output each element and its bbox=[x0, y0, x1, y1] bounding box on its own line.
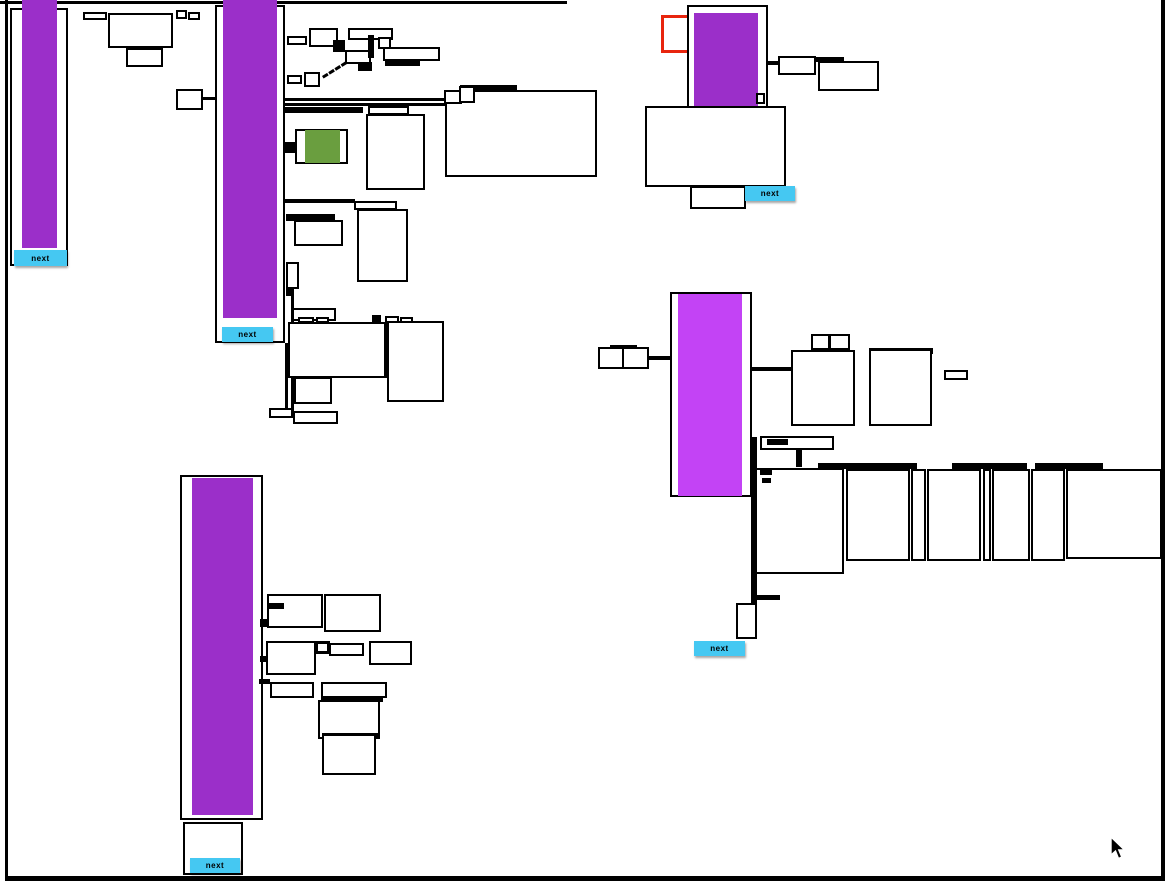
wireframe-box bbox=[818, 61, 879, 91]
wireframe-box bbox=[287, 75, 302, 84]
wireframe-box bbox=[188, 12, 200, 20]
wireframe-box bbox=[690, 186, 746, 209]
wireframe-box bbox=[176, 10, 187, 19]
connector-bar bbox=[767, 439, 788, 445]
wireframe-canvas: next next bbox=[0, 0, 1168, 887]
wireframe-box bbox=[756, 93, 765, 104]
carousel-cell bbox=[992, 469, 1030, 561]
connector-node bbox=[796, 450, 802, 467]
frame-right-border bbox=[1161, 0, 1165, 881]
wireframe-box bbox=[736, 603, 757, 639]
wireframe-box bbox=[288, 322, 386, 378]
wireframe-box bbox=[357, 209, 408, 282]
carousel-cell bbox=[983, 469, 991, 561]
highlight-bar bbox=[223, 0, 277, 318]
connector-node bbox=[358, 62, 372, 71]
wireframe-box bbox=[778, 56, 816, 75]
highlight-bar bbox=[678, 294, 742, 496]
connector-bar bbox=[285, 107, 363, 113]
wireframe-box bbox=[270, 682, 314, 698]
cursor-icon bbox=[1107, 836, 1127, 862]
next-button[interactable]: next bbox=[190, 858, 240, 873]
frame-left-border bbox=[5, 0, 8, 881]
wireframe-box bbox=[287, 36, 307, 45]
wireframe-box bbox=[304, 72, 320, 87]
connector-node bbox=[372, 315, 381, 322]
connector-node bbox=[368, 35, 374, 58]
wireframe-box bbox=[266, 641, 316, 675]
wireframe-box bbox=[267, 594, 323, 628]
connector-line bbox=[649, 356, 670, 360]
tick-mark bbox=[757, 595, 780, 600]
connector-node bbox=[333, 40, 345, 52]
wireframe-box bbox=[83, 12, 107, 20]
connector-node bbox=[286, 287, 294, 296]
divider-line bbox=[622, 349, 624, 367]
connector-line bbox=[285, 98, 451, 101]
wireframe-box bbox=[294, 220, 343, 246]
wireframe-box bbox=[176, 89, 203, 110]
connector-line bbox=[752, 367, 792, 371]
tick-mark bbox=[762, 478, 771, 483]
carousel-cell bbox=[1031, 469, 1065, 561]
wireframe-box bbox=[445, 90, 597, 177]
carousel-cell bbox=[846, 469, 910, 561]
wireframe-box bbox=[322, 734, 376, 775]
highlight-bar bbox=[22, 0, 57, 248]
wireframe-box bbox=[294, 377, 332, 404]
wireframe-box bbox=[811, 334, 830, 350]
next-button[interactable]: next bbox=[745, 186, 795, 201]
wireframe-box bbox=[293, 411, 338, 424]
wireframe-box bbox=[269, 408, 293, 418]
wireframe-box bbox=[286, 262, 299, 289]
tick-mark bbox=[760, 470, 772, 475]
wireframe-box bbox=[324, 594, 381, 632]
connector-bar bbox=[385, 60, 420, 66]
next-button[interactable]: next bbox=[14, 250, 67, 266]
wireframe-box bbox=[459, 86, 475, 103]
next-button[interactable]: next bbox=[222, 327, 273, 342]
wireframe-box bbox=[869, 349, 932, 426]
dashed-connector bbox=[322, 61, 347, 78]
carousel-cell bbox=[927, 469, 981, 561]
wireframe-box bbox=[315, 641, 330, 654]
wireframe-box bbox=[108, 13, 173, 48]
wireframe-box bbox=[645, 106, 786, 187]
frame-bottom-border bbox=[5, 876, 1165, 881]
connector-bar bbox=[269, 603, 284, 609]
wireframe-box bbox=[366, 114, 425, 190]
green-block bbox=[305, 130, 340, 163]
wireframe-box bbox=[755, 468, 844, 574]
carousel-cell bbox=[1066, 469, 1162, 559]
highlight-bar bbox=[192, 478, 253, 815]
wireframe-box bbox=[329, 643, 364, 656]
wireframe-box bbox=[791, 350, 855, 426]
wireframe-box bbox=[383, 47, 440, 61]
connector-line bbox=[203, 97, 215, 100]
wireframe-box bbox=[829, 334, 850, 350]
connector-node bbox=[259, 679, 270, 684]
next-button[interactable]: next bbox=[694, 641, 745, 656]
carousel-cell bbox=[911, 469, 926, 561]
wireframe-box bbox=[126, 48, 163, 67]
connector-line bbox=[285, 199, 355, 203]
wireframe-box bbox=[944, 370, 968, 380]
wireframe-box bbox=[387, 321, 444, 402]
wireframe-box bbox=[369, 641, 412, 665]
frame-top-border bbox=[0, 1, 567, 4]
